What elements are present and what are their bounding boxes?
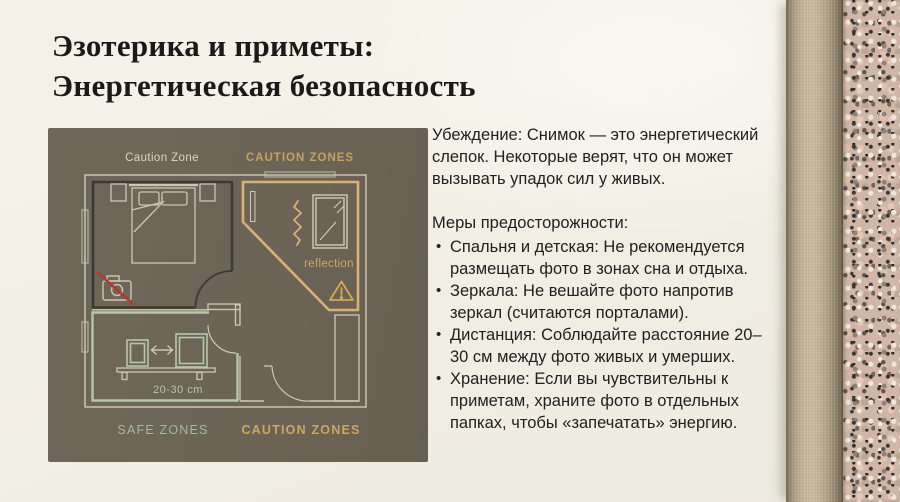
content-column: Убеждение: Снимок — это энергетический с… — [432, 124, 770, 434]
label-caution-zones-top: CAUTION ZONES — [246, 152, 354, 164]
title-line-2: Энергетическая безопасность — [52, 66, 476, 106]
energy-zigzag-icon — [294, 201, 301, 245]
label-distance: 20-30 cm — [153, 384, 203, 396]
bedroom-door-arc — [196, 271, 233, 308]
label-safe-zones: SAFE ZONES — [117, 423, 208, 437]
label-caution-zone-bedroom: Caution Zone — [125, 152, 199, 164]
closet-walls — [92, 304, 359, 401]
precautions-heading: Меры предосторожности: — [432, 212, 770, 234]
entry-door-arc — [272, 366, 310, 401]
granite-texture-strip — [843, 0, 900, 502]
safe-zone-door-arc — [208, 325, 236, 353]
precaution-item: Спальня и детская: Не рекомендуется разм… — [432, 236, 770, 280]
precaution-item: Зеркала: Не вешайте фото напротив зеркал… — [432, 280, 770, 324]
floorplan-svg: Caution Zone CAUTION ZONES SAFE ZONES CA… — [48, 128, 428, 462]
shelf-icon — [117, 368, 215, 380]
linen-texture-strip — [786, 0, 843, 502]
no-photo-icon — [97, 272, 134, 305]
slide-title: Эзотерика и приметы: Энергетическая безо… — [52, 26, 476, 106]
title-line-1: Эзотерика и приметы: — [52, 26, 476, 66]
distance-arrow-icon — [152, 346, 173, 354]
floorplan-panel: Caution Zone CAUTION ZONES SAFE ZONES CA… — [48, 128, 428, 462]
slide-background: Эзотерика и приметы: Энергетическая безо… — [0, 0, 900, 502]
label-caution-zones-bottom: CAUTION ZONES — [241, 423, 360, 437]
mirror-icon — [313, 195, 347, 248]
interior-wall — [251, 192, 256, 222]
precautions-list: Спальня и детская: Не рекомендуется разм… — [432, 236, 770, 434]
precaution-item: Дистанция: Соблюдайте расстояние 20–30 с… — [432, 324, 770, 368]
precaution-item: Хранение: Если вы чувствительны к примет… — [432, 368, 770, 434]
intro-paragraph: Убеждение: Снимок — это энергетический с… — [432, 124, 770, 190]
bed-icon — [129, 185, 198, 263]
label-reflection: reflection — [304, 258, 354, 270]
warning-triangle-icon — [330, 282, 353, 301]
